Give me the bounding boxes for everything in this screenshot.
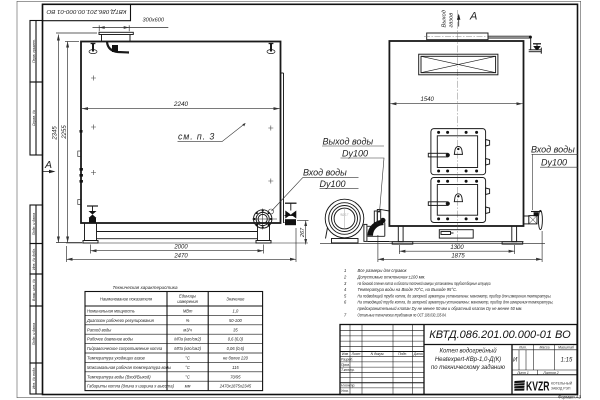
svg-text:Вход воды: Вход воды: [531, 145, 575, 155]
svg-text:Изм: Изм: [342, 352, 349, 356]
svg-text:На подводящей трубе котла, до: На подводящей трубе котла, до запорной а…: [358, 293, 552, 298]
svg-text:Heatexpert-КВр-1,0-Д(К): Heatexpert-КВр-1,0-Д(К): [435, 357, 501, 363]
svg-text:Подп. и дата: Подп. и дата: [32, 213, 36, 236]
svg-text:Н.контр.: Н.контр.: [341, 384, 355, 388]
svg-text:50-100: 50-100: [229, 318, 242, 323]
svg-text:Вход воды: Вход воды: [303, 168, 347, 178]
svg-text:предохранительный клапан Dу не: предохранительный клапан Dу не менее 50 …: [358, 306, 523, 311]
svg-text:Расход воды: Расход воды: [87, 327, 111, 332]
svg-text:газов: газов: [449, 13, 455, 28]
svg-text:%: %: [186, 318, 190, 323]
svg-text:2470: 2470: [173, 253, 188, 259]
svg-text:Максимальная рабочая температу: Максимальная рабочая температура воды: [87, 365, 171, 370]
svg-text:Выход: Выход: [441, 9, 447, 27]
svg-text:Подп. и дата: Подп. и дата: [32, 323, 36, 346]
svg-text:0,6 (6,0): 0,6 (6,0): [228, 337, 244, 342]
svg-text:МПа (кгс/см2): МПа (кгс/см2): [174, 337, 201, 342]
svg-text:Котел водогрейный: Котел водогрейный: [439, 348, 497, 355]
svg-text:1,0: 1,0: [233, 309, 239, 314]
svg-text:МВт: МВт: [183, 309, 193, 314]
svg-text:°С: °С: [185, 374, 190, 379]
svg-text:2345: 2345: [53, 126, 59, 141]
svg-text:КВТД.086.201.00.000-01 ВО: КВТД.086.201.00.000-01 ВО: [46, 8, 127, 14]
svg-text:Температура воды (Вход/Выход): Температура воды (Вход/Выход): [87, 374, 151, 379]
svg-text:Разраб.: Разраб.: [341, 358, 353, 362]
svg-text:Формат А3: Формат А3: [558, 394, 582, 399]
svg-text:Допустимые отклонения ±100 мм.: Допустимые отклонения ±100 мм.: [357, 275, 426, 280]
svg-text:Номинальная мощность: Номинальная мощность: [87, 309, 135, 314]
svg-text:измерения: измерения: [177, 299, 198, 304]
svg-text:На отводящей трубе котла, до з: На отводящей трубе котла, до запорной ар…: [358, 300, 554, 305]
svg-text:Лист 1: Лист 1: [516, 371, 529, 375]
svg-text:2470х1875х2345: 2470х1875х2345: [219, 384, 252, 389]
svg-text:1875: 1875: [451, 253, 465, 259]
svg-text:Температура воды на Входе 70°С: Температура воды на Входе 70°С, на Выход…: [358, 287, 458, 292]
svg-text:Рабочее давление воды: Рабочее давление воды: [87, 337, 133, 342]
svg-text:Единицы: Единицы: [179, 294, 196, 299]
svg-text:Инв. № подл.: Инв. № подл.: [32, 367, 36, 389]
svg-text:Перв. примен.: Перв. примен.: [32, 39, 36, 63]
svg-text:А: А: [44, 159, 52, 171]
svg-text:267: 267: [300, 227, 306, 238]
svg-text:На боковой стенке котла в обла: На боковой стенке котла в области топочн…: [358, 281, 492, 286]
svg-text:Лит.: Лит.: [518, 346, 527, 350]
svg-text:35: 35: [233, 327, 238, 332]
svg-text:1300: 1300: [450, 245, 464, 251]
svg-text:Инв. № дубл.: Инв. № дубл.: [32, 248, 36, 270]
svg-text:115: 115: [232, 365, 239, 370]
svg-text:МПа (кгс/см2): МПа (кгс/см2): [174, 346, 201, 351]
svg-text:Подп.: Подп.: [398, 352, 407, 356]
svg-text:Справ. №: Справ. №: [32, 110, 36, 126]
svg-text:ВД-2,7: ВД-2,7: [341, 213, 349, 217]
svg-text:мм: мм: [185, 384, 191, 389]
svg-text:°С: °С: [185, 365, 190, 370]
svg-text:2255: 2255: [62, 125, 68, 140]
svg-text:Техническая характеристика: Техническая характеристика: [112, 285, 177, 290]
svg-text:Дата: Дата: [413, 352, 423, 356]
svg-text:300х600: 300х600: [143, 18, 165, 24]
svg-text:Температура уходящих газов: Температура уходящих газов: [87, 356, 146, 361]
svg-text:Пров.: Пров.: [341, 363, 350, 367]
svg-text:1540: 1540: [421, 97, 435, 103]
svg-text:Масштаб: Масштаб: [558, 346, 574, 350]
svg-text:Утв.: Утв.: [341, 389, 349, 393]
svg-text:Остальные технические требован: Остальные технические требования по ОСТ …: [358, 312, 447, 317]
svg-text:Т.контр.: Т.контр.: [341, 368, 355, 372]
svg-text:Значение: Значение: [226, 297, 245, 302]
svg-text:Листов 2: Листов 2: [542, 371, 558, 375]
svg-text:Dy100: Dy100: [342, 148, 368, 158]
svg-text:Наименование показателя: Наименование показателя: [100, 297, 153, 302]
svg-text:Гидравлическое сопротивление к: Гидравлическое сопротивление котла: [87, 346, 163, 351]
svg-text:1:15: 1:15: [561, 358, 573, 364]
svg-text:Масса: Масса: [539, 346, 549, 350]
svg-text:Лист: Лист: [351, 352, 361, 356]
svg-text:Dy100: Dy100: [541, 158, 567, 168]
svg-text:И: И: [513, 358, 518, 364]
svg-text:70/95: 70/95: [230, 374, 241, 379]
svg-text:1: 1: [344, 268, 346, 273]
svg-text:Диапазон рабочего регулировани: Диапазон рабочего регулирования: [86, 318, 155, 323]
svg-text:0,06 (0,6): 0,06 (0,6): [227, 346, 245, 351]
svg-text:м3/ч: м3/ч: [183, 327, 192, 332]
svg-text:2240: 2240: [173, 101, 189, 108]
svg-text:КОТЕЛЬНЫЙ: КОТЕЛЬНЫЙ: [551, 381, 573, 385]
svg-text:°С: °С: [185, 356, 190, 361]
svg-text:Dy100: Dy100: [320, 179, 346, 189]
svg-text:Взам. инв. №: Взам. инв. №: [32, 279, 36, 301]
svg-text:по техническому заданию: по техническому заданию: [431, 365, 506, 371]
svg-text:Габариты котла (длина х ширина: Габариты котла (длина х ширина х высота): [87, 384, 175, 389]
svg-text:KVZR: KVZR: [526, 379, 550, 393]
svg-text:Все размеры для справок: Все размеры для справок: [358, 268, 408, 273]
svg-text:КВТД.086.201.00.000-01 ВО: КВТД.086.201.00.000-01 ВО: [429, 329, 571, 341]
svg-text:не более 220: не более 220: [223, 356, 249, 361]
svg-text:см. п. 3: см. п. 3: [178, 132, 215, 142]
svg-text:N докум.: N докум.: [371, 352, 385, 356]
svg-text:Выход воды: Выход воды: [323, 137, 374, 147]
svg-text:А: А: [469, 11, 477, 23]
svg-text:2000: 2000: [173, 245, 188, 251]
svg-text:ЗАВОД РЭП: ЗАВОД РЭП: [551, 386, 571, 390]
